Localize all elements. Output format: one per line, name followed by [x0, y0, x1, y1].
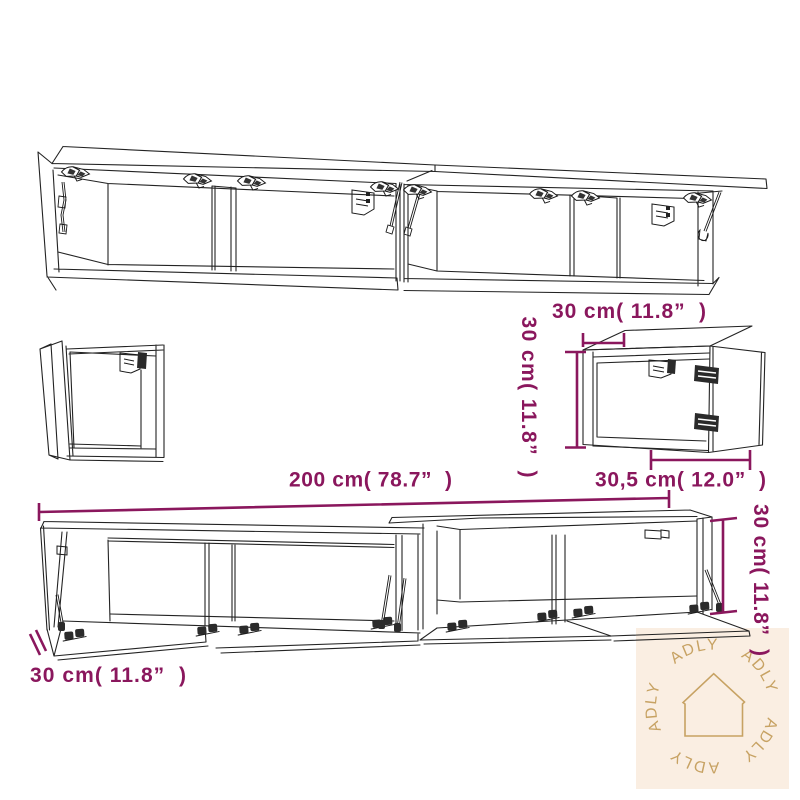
svg-text:200 cm( 78.7” ): 200 cm( 78.7” ): [289, 469, 452, 492]
svg-text:30 cm( 11.8” ): 30 cm( 11.8” ): [749, 504, 772, 656]
svg-text:30 cm( 11.8” ): 30 cm( 11.8” ): [552, 300, 706, 323]
svg-text:30,5 cm( 12.0” ): 30,5 cm( 12.0” ): [595, 469, 766, 492]
svg-text:30 cm( 11.8” ): 30 cm( 11.8” ): [517, 317, 540, 478]
svg-text:30 cm( 11.8” ): 30 cm( 11.8” ): [30, 664, 186, 687]
